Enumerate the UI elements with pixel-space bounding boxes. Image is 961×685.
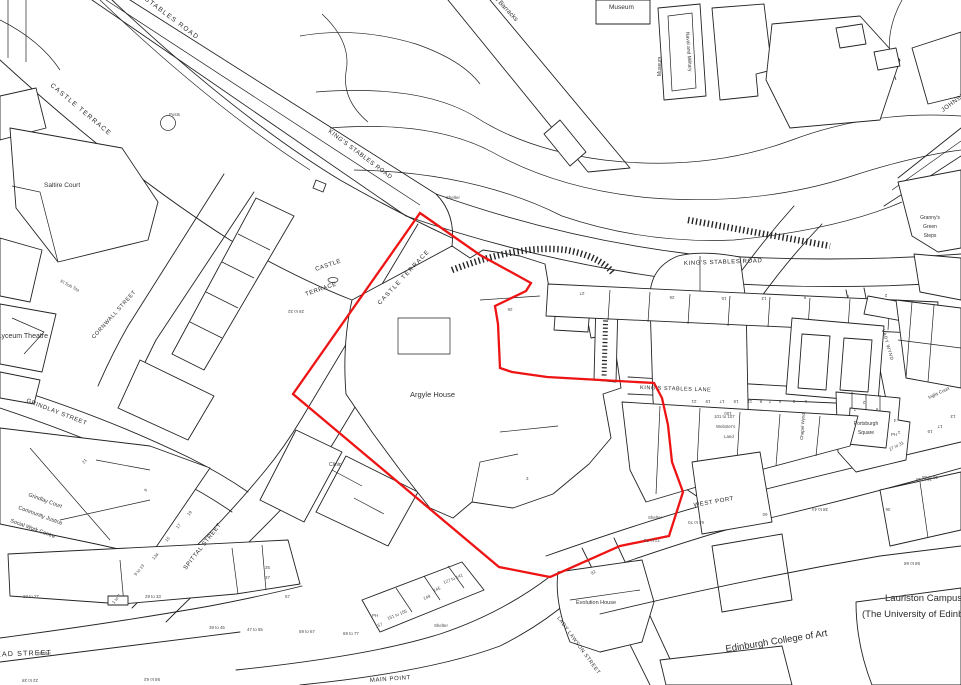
number-label: 35 (265, 565, 270, 570)
place-label-ph-1: PH (891, 432, 897, 437)
number-label: 58 to 62 (144, 677, 160, 682)
street-label-terrace-word: TERRACE (305, 282, 338, 298)
traffic-island (161, 116, 176, 131)
number-label: 17 (175, 522, 182, 529)
number-label: 21 (691, 399, 696, 404)
number-label: 2 (884, 293, 887, 298)
place-label-el-sub-sta: El Sub Sta (60, 278, 81, 292)
place-label-posts: Posts (169, 112, 181, 117)
place-label-lauriston-campus: Lauriston Campus (885, 593, 961, 604)
street-label-cornwall-street: CORNWALL STREET (91, 289, 138, 340)
place-label-museum: Museum (609, 4, 634, 11)
number-label: 39 to 45 (209, 625, 225, 630)
map-canvas: KING'S STABLES ROAD CASTLE TERRACE KING'… (0, 0, 961, 685)
number-label: 29 to 32 (288, 309, 304, 314)
number-label: 62 to 70 (688, 520, 704, 525)
number-label: 37 (265, 575, 270, 580)
number-label: 47 to 55 (247, 627, 263, 632)
place-label-grannys-green-steps-3: Steps (924, 233, 937, 239)
place-label-portsburgh-2: Square (858, 430, 874, 436)
building-outlines (0, 0, 961, 685)
place-label-museum-vertical: Museum (657, 57, 663, 76)
place-label-new-barracks: New Barracks (487, 0, 520, 23)
place-label-inglis-court: Inglis Court (927, 385, 950, 399)
place-label-argyle-house: Argyle House (410, 390, 455, 399)
place-label-websters-3: Land (724, 434, 734, 439)
number-label: 15 (733, 399, 738, 404)
number-label: 15 (164, 535, 171, 542)
number-label: 69 to 77 (343, 631, 359, 636)
number-label: 19 (186, 509, 193, 516)
number-label: 59 to 67 (299, 629, 315, 634)
place-label-clinic: Clinic (329, 462, 342, 468)
place-label-shelter-3: Shelter (434, 623, 448, 628)
number-label: 60 (762, 512, 767, 517)
number-label: 19 (927, 429, 932, 434)
number-label: 57 (285, 594, 290, 599)
number-label: 26 (507, 307, 512, 312)
number-label: 26 (669, 295, 674, 300)
number-label: 23 to 27 (23, 594, 39, 599)
street-label-castle-word: CASTLE (315, 258, 342, 272)
place-label-shelter-1: Shelter (446, 195, 460, 200)
place-label-shelter-4: Shelter (37, 651, 51, 656)
number-label: 11 (747, 399, 752, 404)
number-label: 5 (778, 399, 781, 404)
number-label: 27 (579, 291, 584, 296)
number-label: 15 (721, 296, 726, 301)
number-label: 17 (719, 399, 724, 404)
number-label: 36 (885, 507, 890, 512)
place-label-royal-lyceum-theatre: Royal Lyceum Theatre (0, 333, 48, 340)
street-label-kings-stables-lane: KING'S STABLES LANE (640, 385, 712, 393)
place-label-ph-2: PH (372, 613, 378, 618)
street-label-main-point: MAIN POINT (370, 675, 411, 684)
place-label-university: (The University of Edinburgh) (862, 609, 961, 620)
number-label: 72 to 76 (644, 538, 660, 543)
place-label-websters-2: Webster's (716, 424, 736, 429)
street-label-kings-stables-road-nw: KING'S STABLES ROAD (117, 0, 200, 41)
saltire-court-building (10, 128, 158, 262)
place-label-grannys-green-steps-1: Granny's (920, 215, 940, 221)
place-label-saltire-court: Saltire Court (44, 182, 80, 189)
place-label-evolution-house: Evolution House (576, 600, 616, 606)
number-label: 38 to 44 (812, 507, 828, 512)
street-label-castle-terrace-upper: CASTLE TERRACE (49, 82, 113, 137)
number-label: 17 (937, 424, 942, 429)
number-label: 22 to 28 (22, 678, 38, 683)
place-label-grannys-green-steps-2: Green (923, 224, 937, 230)
number-label: 13 (761, 296, 766, 301)
number-label: 58 to 68 (904, 561, 920, 566)
place-label-portsburgh-1: Portsburgh (854, 421, 879, 427)
street-label-kings-stables-road-w: KING'S STABLES ROAD (327, 129, 393, 181)
street-label-lady-wynd: LADY WYND (881, 329, 895, 361)
number-label: 13 (950, 414, 955, 419)
place-label-shelter-2: Shelter (648, 515, 662, 520)
number-label: 29 to 33 (145, 594, 161, 599)
number-label: 100 (724, 411, 732, 416)
number-label: 19 (705, 399, 710, 404)
os-site-plan: KING'S STABLES ROAD CASTLE TERRACE KING'… (0, 0, 961, 685)
number-label: 16 to 18 (916, 477, 932, 482)
